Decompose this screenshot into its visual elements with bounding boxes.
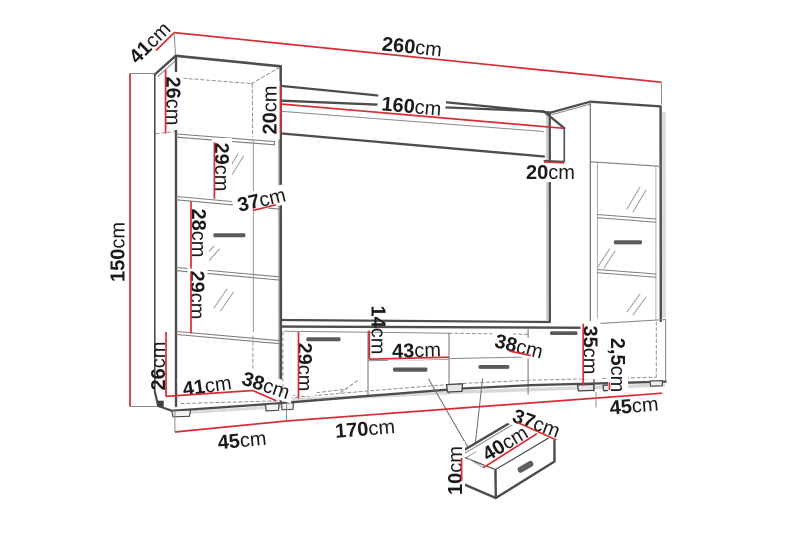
svg-text:10cm: 10cm — [445, 446, 467, 495]
svg-text:170cm: 170cm — [334, 416, 396, 443]
svg-text:29cm: 29cm — [186, 271, 208, 320]
svg-text:45cm: 45cm — [217, 428, 268, 455]
svg-text:20cm: 20cm — [260, 86, 282, 135]
svg-text:29cm: 29cm — [210, 143, 232, 192]
svg-text:35cm: 35cm — [579, 326, 601, 375]
svg-text:29cm: 29cm — [293, 343, 315, 392]
svg-text:20cm: 20cm — [526, 162, 575, 184]
svg-text:150cm: 150cm — [108, 222, 130, 282]
